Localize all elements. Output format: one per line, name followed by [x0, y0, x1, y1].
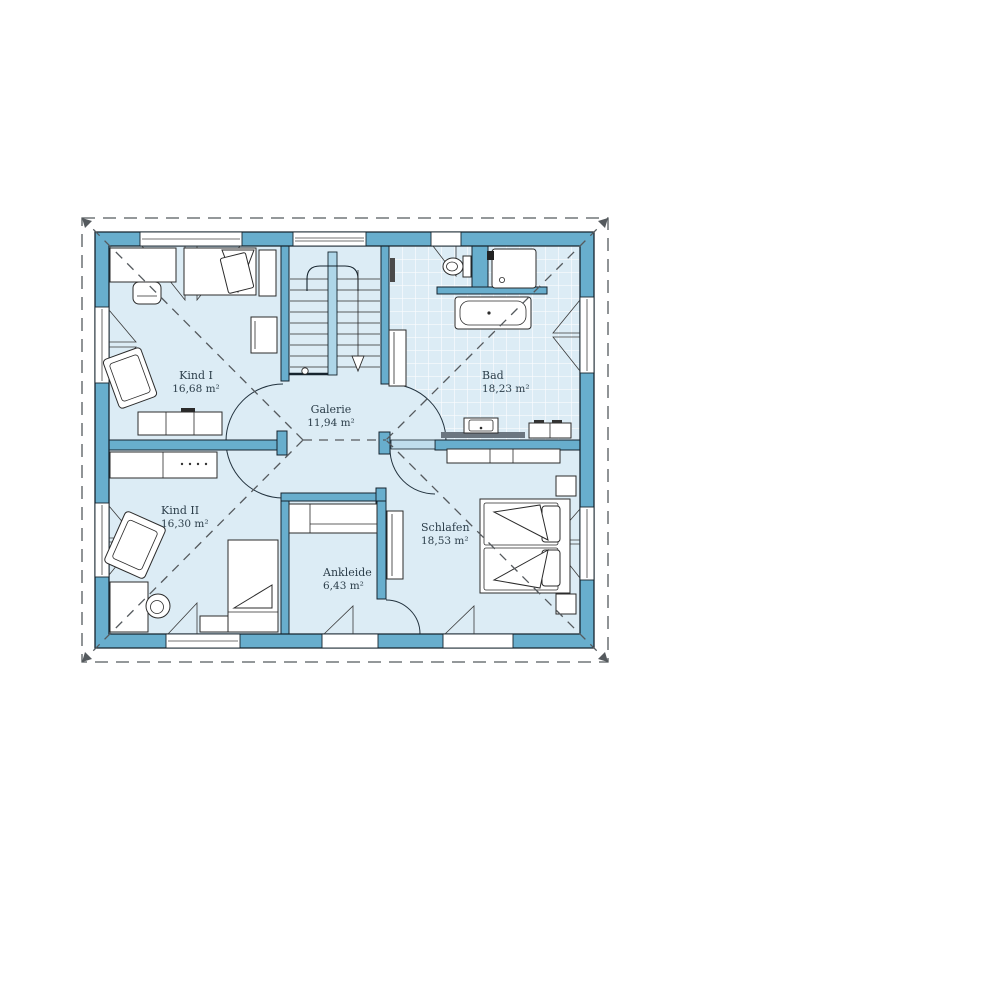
stair-newel-post	[302, 368, 308, 374]
wardrobe	[259, 250, 276, 296]
room-area: 16,30 m²	[161, 518, 209, 530]
sink	[464, 418, 498, 433]
radiator	[390, 258, 395, 282]
bathroom-cabinet-low	[529, 420, 571, 438]
room-area: 11,94 m²	[307, 417, 355, 429]
floor-plan-canvas: Kind I 16,68 m² Galerie 11,94 m² Bad 18,…	[0, 0, 1000, 1000]
wall-ankleide-right	[377, 501, 386, 599]
wall-stairs-left	[281, 246, 289, 381]
room-name: Kind I	[179, 369, 213, 382]
wall-kind1-kind2	[109, 440, 277, 450]
nightstand	[200, 616, 228, 632]
window-stairs-top	[293, 232, 366, 246]
wall-stairs-right	[381, 246, 389, 384]
wardrobe	[251, 317, 277, 353]
bathroom-cabinet-tall	[389, 330, 406, 386]
desk-chair	[133, 282, 161, 304]
sideboard	[138, 408, 222, 435]
nightstand	[556, 594, 576, 614]
room-area: 6,43 m²	[323, 580, 364, 592]
room-name: Bad	[482, 369, 504, 382]
shower	[487, 249, 536, 288]
room-name: Schlafen	[421, 521, 470, 534]
single-bed	[184, 248, 256, 295]
bathtub	[455, 297, 531, 329]
room-name: Kind II	[161, 504, 199, 517]
single-bed	[228, 540, 278, 632]
ankleide-furniture	[289, 504, 377, 533]
nightstand	[556, 476, 576, 496]
wall-pier-left	[277, 431, 287, 455]
room-area: 18,23 m²	[482, 383, 530, 395]
room-area: 16,68 m²	[172, 383, 220, 395]
door-leaf-schlafen	[391, 440, 435, 449]
sideboard	[447, 449, 560, 463]
desk	[110, 582, 148, 632]
wall-ankleide-left	[281, 493, 289, 634]
wall-toilet-niche	[472, 246, 488, 290]
room-area: 18,53 m²	[421, 535, 469, 547]
desk-chair-round	[146, 594, 170, 618]
toilet	[443, 256, 471, 277]
floor-plan: Kind I 16,68 m² Galerie 11,94 m² Bad 18,…	[0, 0, 1000, 1000]
sideboard	[110, 452, 217, 478]
wardrobe	[387, 511, 403, 579]
stair-center-rail	[328, 252, 337, 375]
room-name: Ankleide	[322, 566, 372, 579]
wall-ankleide-top	[281, 493, 385, 501]
wardrobe	[289, 504, 377, 533]
room-name: Galerie	[311, 403, 352, 416]
shower-head	[487, 251, 494, 260]
